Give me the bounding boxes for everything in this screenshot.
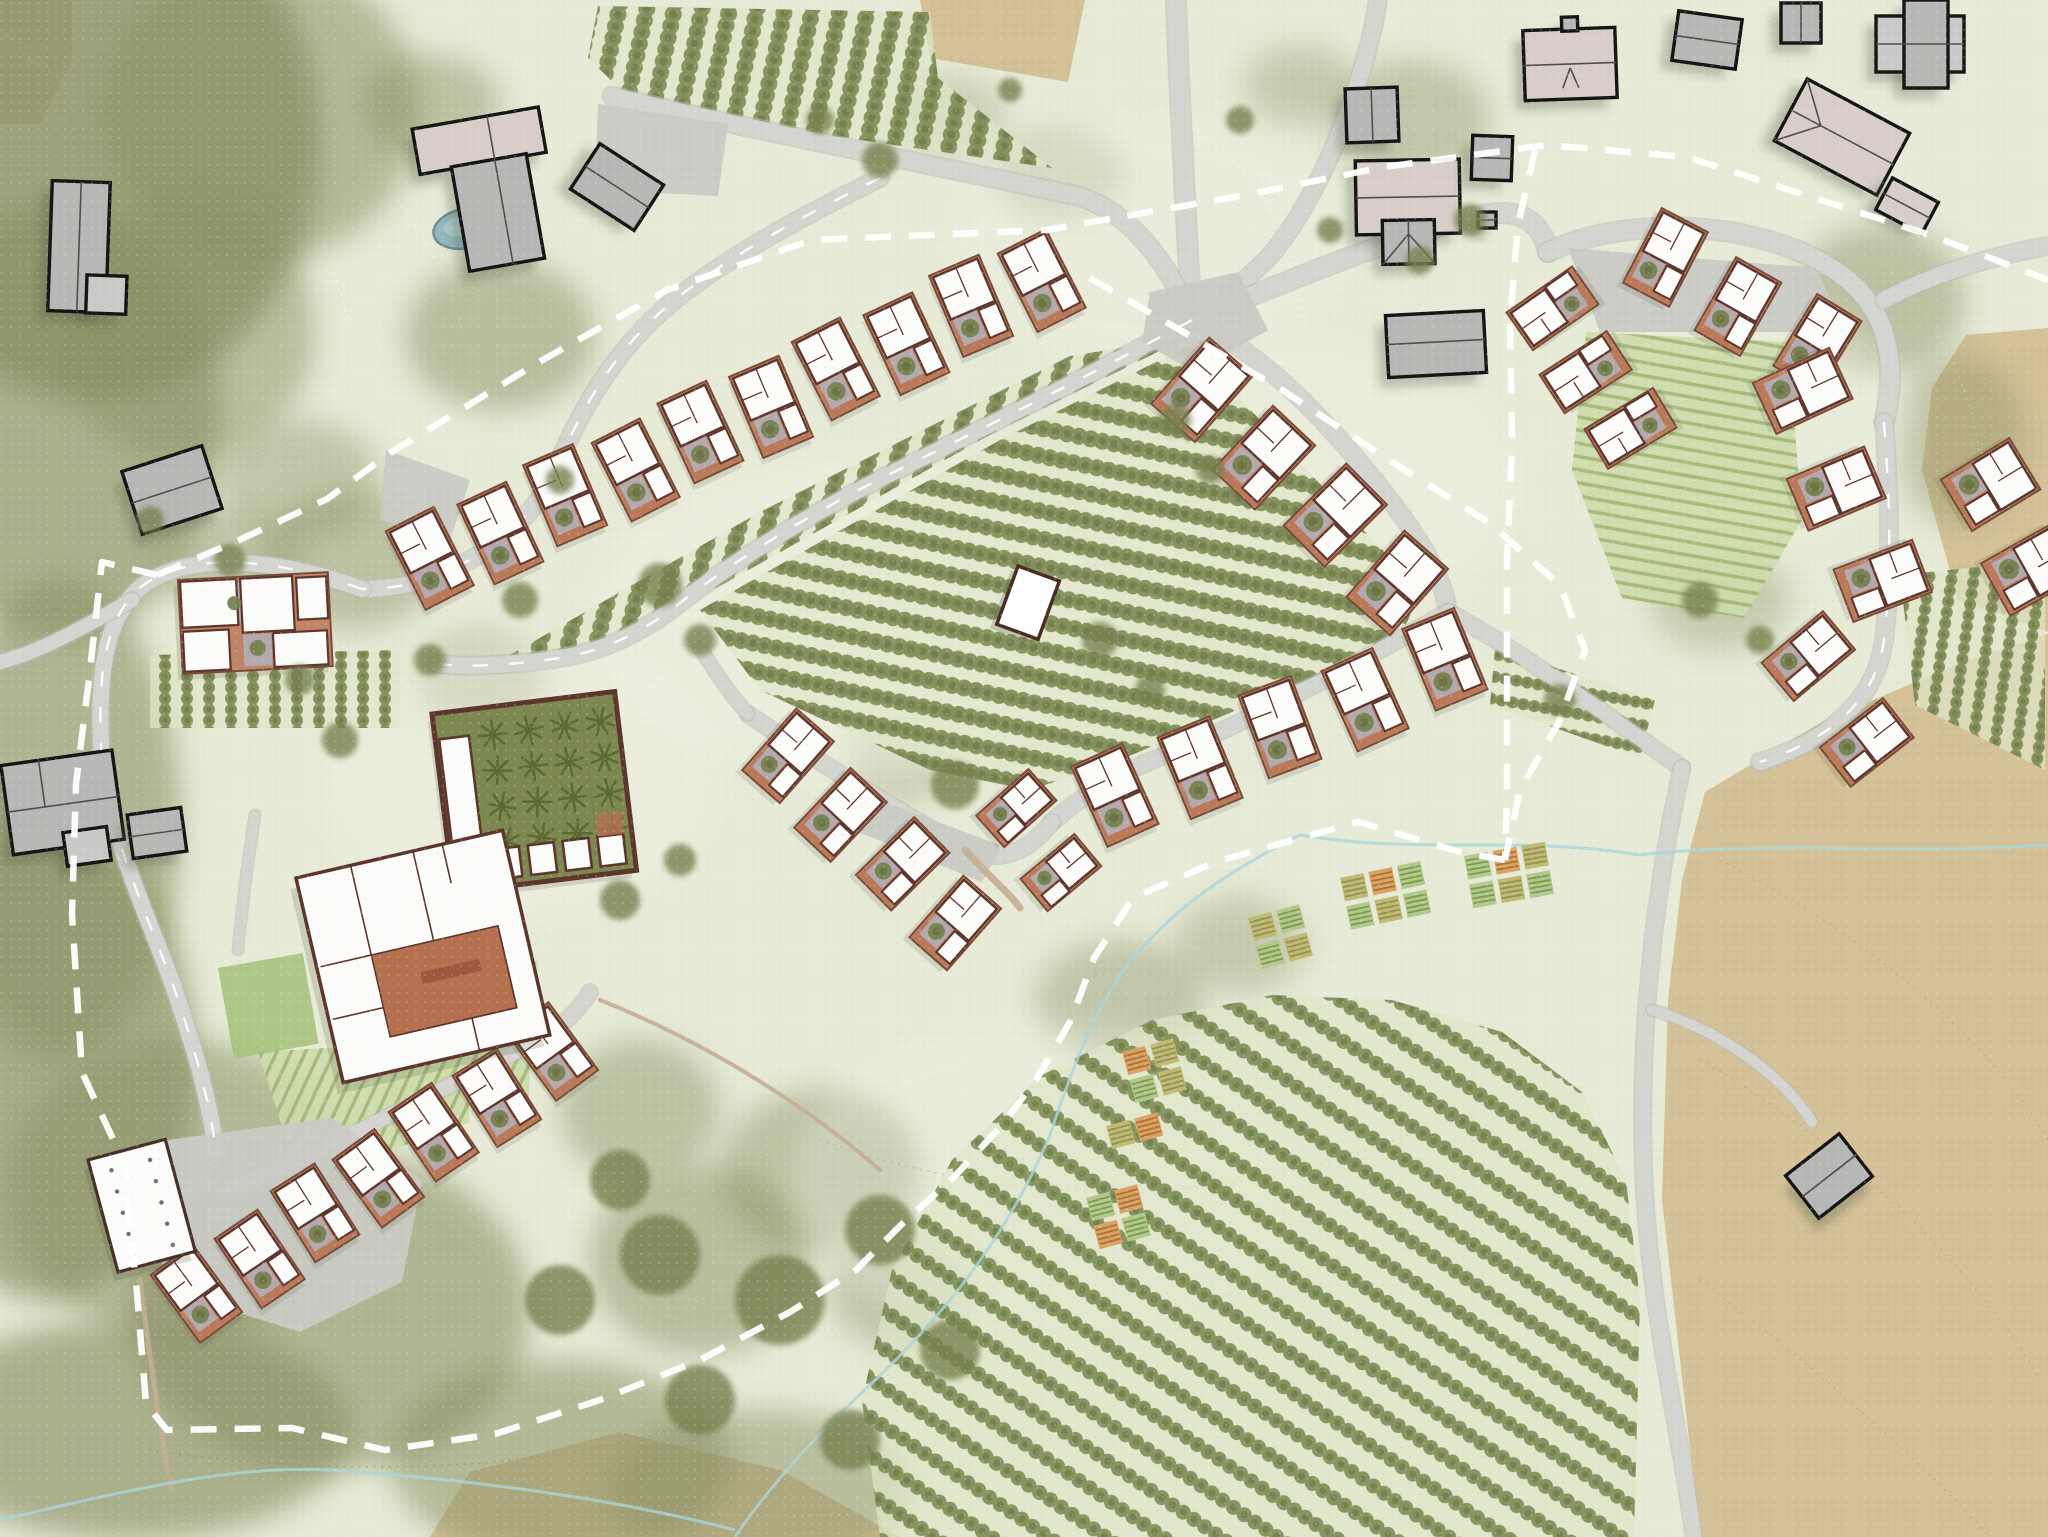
site-plan-page	[0, 0, 2048, 1537]
masterplan-drawing	[0, 0, 2048, 1537]
texture-overlay	[0, 0, 2048, 1537]
paper-grain	[0, 0, 2048, 1537]
